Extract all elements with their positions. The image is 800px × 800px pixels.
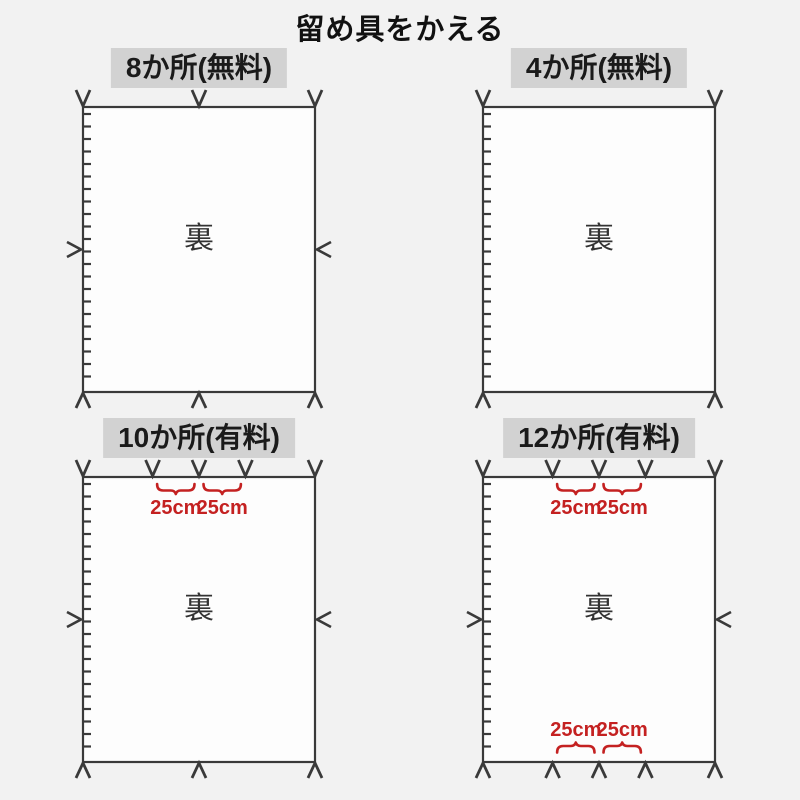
fastener-arrow-top-icon (592, 460, 606, 476)
back-side-label: 裏 (584, 592, 614, 625)
panel-count-label: 8か所(無料) (111, 48, 287, 88)
fastener-arrow-bottom-icon (76, 393, 90, 408)
page-container: 留め具をかえる 8か所(無料) 裏 4か所(無料) 裏 10か所(有料) 裏25… (0, 0, 800, 800)
fastener-arrow-left-icon (67, 612, 81, 627)
fastener-arrow-right-icon (317, 242, 331, 257)
panel-10-places-paid: 10か所(有料) 裏25cm25cm (40, 416, 360, 788)
panel-count-label: 4か所(無料) (511, 48, 687, 88)
fastener-arrow-top-icon (76, 460, 90, 476)
fastener-arrow-top-icon (708, 460, 722, 476)
spacing-value: 25cm (197, 497, 248, 519)
fastener-arrow-left-icon (67, 242, 81, 257)
fastener-arrow-bottom-icon (192, 763, 206, 778)
fastener-arrow-right-icon (317, 612, 331, 627)
futon-back-diagram: 裏25cm25cm25cm25cm (440, 456, 760, 786)
back-side-label: 裏 (184, 222, 214, 255)
panel-count-label: 10か所(有料) (103, 418, 295, 458)
fastener-arrow-top-icon (308, 460, 322, 476)
fastener-arrow-top-icon (476, 90, 490, 106)
back-side-label: 裏 (184, 592, 214, 625)
page-title: 留め具をかえる (0, 6, 800, 48)
fastener-arrow-bottom-icon (192, 393, 206, 408)
fastener-arrow-bottom-icon (476, 763, 490, 778)
fastener-arrow-top-icon (146, 460, 160, 476)
spacing-value: 25cm (550, 497, 601, 519)
spacing-value: 25cm (597, 497, 648, 519)
fastener-arrow-bottom-icon (76, 763, 90, 778)
futon-back-diagram: 裏 (40, 86, 360, 416)
panel-count-label: 12か所(有料) (503, 418, 695, 458)
futon-back-diagram: 裏25cm25cm (40, 456, 360, 786)
fastener-arrow-bottom-icon (708, 763, 722, 778)
panel-12-places-paid: 12か所(有料) 裏25cm25cm25cm25cm (440, 416, 760, 788)
fastener-arrow-bottom-icon (308, 393, 322, 408)
fastener-arrow-bottom-icon (592, 763, 606, 778)
fastener-arrow-bottom-icon (476, 393, 490, 408)
fastener-arrow-top-icon (308, 90, 322, 106)
fastener-arrow-top-icon (546, 460, 560, 476)
back-side-label: 裏 (584, 222, 614, 255)
fastener-arrow-bottom-icon (308, 763, 322, 778)
fastener-arrow-bottom-icon (638, 763, 652, 778)
fastener-arrow-top-icon (638, 460, 652, 476)
fastener-arrow-top-icon (76, 90, 90, 106)
futon-back-diagram: 裏 (440, 86, 760, 416)
panel-4-places-free: 4か所(無料) 裏 (440, 46, 760, 418)
fastener-arrow-top-icon (476, 460, 490, 476)
spacing-value: 25cm (150, 497, 201, 519)
spacing-value: 25cm (597, 719, 648, 741)
fastener-arrow-top-icon (192, 90, 206, 106)
panel-8-places-free: 8か所(無料) 裏 (40, 46, 360, 418)
spacing-value: 25cm (550, 719, 601, 741)
fastener-arrow-right-icon (717, 612, 731, 627)
fastener-arrow-left-icon (467, 612, 481, 627)
fastener-arrow-bottom-icon (708, 393, 722, 408)
fastener-arrow-top-icon (192, 460, 206, 476)
fastener-arrow-top-icon (708, 90, 722, 106)
fastener-arrow-top-icon (238, 460, 252, 476)
fastener-arrow-bottom-icon (546, 763, 560, 778)
